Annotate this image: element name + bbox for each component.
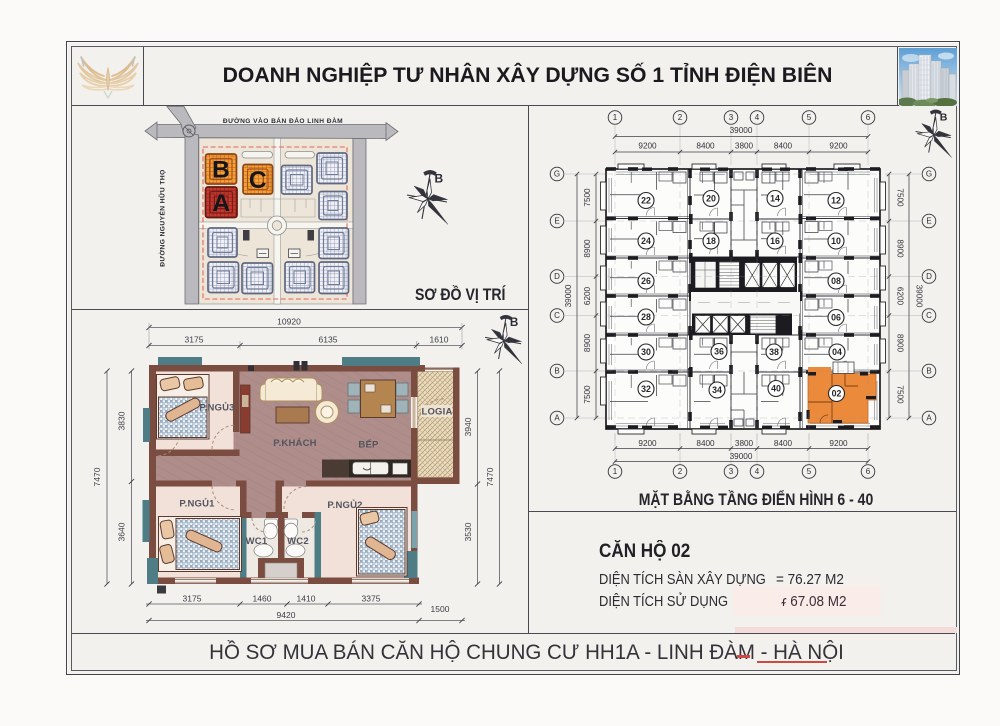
svg-text:2: 2	[678, 467, 683, 476]
svg-text:39000: 39000	[915, 285, 924, 308]
svg-text:7500: 7500	[583, 385, 592, 404]
svg-text:3830: 3830	[117, 411, 127, 430]
svg-text:8400: 8400	[696, 439, 715, 448]
svg-text:A: A	[554, 414, 560, 423]
svg-text:BẾP: BẾP	[358, 440, 379, 451]
svg-text:04: 04	[832, 347, 842, 357]
svg-text:B: B	[554, 367, 559, 376]
svg-text:B: B	[926, 367, 931, 376]
svg-text:39000: 39000	[564, 284, 573, 307]
svg-text:7470: 7470	[485, 467, 495, 486]
svg-text:9420: 9420	[277, 610, 296, 620]
svg-text:B: B	[510, 316, 518, 329]
svg-text:P.NGỦ2: P.NGỦ2	[327, 499, 362, 511]
svg-text:7500: 7500	[583, 188, 592, 207]
svg-text:8400: 8400	[774, 142, 793, 151]
svg-text:26: 26	[641, 276, 651, 286]
svg-text:30: 30	[641, 347, 651, 357]
svg-text:3375: 3375	[362, 594, 381, 604]
svg-text:P.KHÁCH: P.KHÁCH	[273, 438, 316, 449]
svg-text:32: 32	[641, 384, 651, 394]
svg-text:7500: 7500	[896, 188, 905, 207]
svg-text:5: 5	[807, 113, 812, 122]
svg-text:2: 2	[678, 113, 683, 122]
svg-text:P.NGỦ3: P.NGỦ3	[199, 402, 234, 414]
svg-text:C: C	[926, 311, 932, 320]
svg-text:1: 1	[613, 113, 618, 122]
svg-text:06: 06	[831, 313, 841, 323]
svg-text:8900: 8900	[583, 333, 592, 352]
svg-text:3175: 3175	[183, 594, 202, 604]
svg-text:5: 5	[807, 467, 812, 476]
svg-text:WC1: WC1	[246, 536, 268, 547]
svg-text:6135: 6135	[319, 335, 338, 345]
svg-text:3800: 3800	[735, 439, 754, 448]
svg-text:8900: 8900	[896, 334, 905, 353]
svg-text:22: 22	[641, 196, 651, 206]
svg-text:9200: 9200	[829, 142, 848, 151]
svg-text:D: D	[554, 272, 560, 281]
svg-text:16: 16	[770, 236, 780, 246]
svg-text:B: B	[940, 111, 948, 123]
svg-text:40: 40	[771, 384, 781, 394]
svg-text:18: 18	[706, 236, 716, 246]
svg-text:28: 28	[641, 312, 651, 322]
svg-text:1500: 1500	[431, 604, 450, 614]
svg-text:39000: 39000	[730, 452, 753, 461]
svg-text:08: 08	[831, 276, 841, 286]
svg-text:1610: 1610	[430, 335, 449, 345]
svg-text:3800: 3800	[735, 142, 754, 151]
svg-text:38: 38	[769, 347, 779, 357]
svg-text:C: C	[554, 311, 560, 320]
svg-text:39000: 39000	[730, 126, 753, 135]
svg-text:LOGIA: LOGIA	[421, 407, 452, 418]
svg-text:9200: 9200	[829, 439, 848, 448]
svg-text:4: 4	[755, 467, 760, 476]
svg-text:E: E	[926, 217, 931, 226]
svg-text:3: 3	[729, 113, 734, 122]
svg-text:14: 14	[770, 194, 780, 204]
svg-text:6200: 6200	[896, 287, 905, 306]
svg-text:ĐƯỜNG NGUYỄN HỮU THỌ: ĐƯỜNG NGUYỄN HỮU THỌ	[158, 169, 167, 266]
svg-text:7500: 7500	[896, 385, 905, 404]
svg-text:A: A	[212, 190, 230, 217]
svg-text:ĐƯỜNG VÀO BÁN ĐẢO LINH ĐÀM: ĐƯỜNG VÀO BÁN ĐẢO LINH ĐÀM	[223, 116, 343, 125]
svg-text:A: A	[926, 414, 932, 423]
svg-text:10920: 10920	[277, 317, 301, 327]
svg-text:3940: 3940	[463, 417, 473, 436]
svg-text:1410: 1410	[297, 594, 316, 604]
svg-text:12: 12	[831, 196, 841, 206]
svg-text:20: 20	[706, 194, 716, 204]
svg-text:34: 34	[712, 385, 722, 395]
svg-text:24: 24	[641, 236, 651, 246]
svg-text:8400: 8400	[696, 142, 715, 151]
svg-text:7470: 7470	[92, 467, 102, 486]
svg-text:C: C	[249, 167, 267, 194]
svg-text:3640: 3640	[117, 522, 127, 541]
svg-text:02: 02	[832, 389, 842, 399]
svg-text:6: 6	[866, 113, 871, 122]
svg-text:P.NGỦ1: P.NGỦ1	[179, 498, 215, 510]
svg-text:36: 36	[714, 347, 724, 357]
svg-text:3530: 3530	[463, 522, 473, 541]
svg-text:8400: 8400	[774, 439, 793, 448]
svg-text:6: 6	[866, 467, 871, 476]
svg-text:10: 10	[831, 236, 841, 246]
svg-text:B: B	[212, 157, 230, 184]
svg-text:D: D	[926, 272, 932, 281]
svg-text:G: G	[926, 170, 932, 179]
svg-text:WC2: WC2	[287, 536, 309, 547]
svg-text:3175: 3175	[185, 335, 204, 345]
svg-text:6200: 6200	[583, 286, 592, 305]
svg-text:4: 4	[755, 113, 760, 122]
svg-text:9200: 9200	[638, 142, 657, 151]
svg-text:1: 1	[613, 467, 618, 476]
svg-text:9200: 9200	[638, 439, 657, 448]
svg-text:8900: 8900	[583, 239, 592, 258]
svg-text:B: B	[435, 172, 444, 186]
svg-text:E: E	[554, 217, 559, 226]
svg-text:3: 3	[729, 467, 734, 476]
svg-text:1460: 1460	[253, 594, 272, 604]
svg-text:8900: 8900	[896, 239, 905, 258]
svg-text:G: G	[554, 170, 560, 179]
